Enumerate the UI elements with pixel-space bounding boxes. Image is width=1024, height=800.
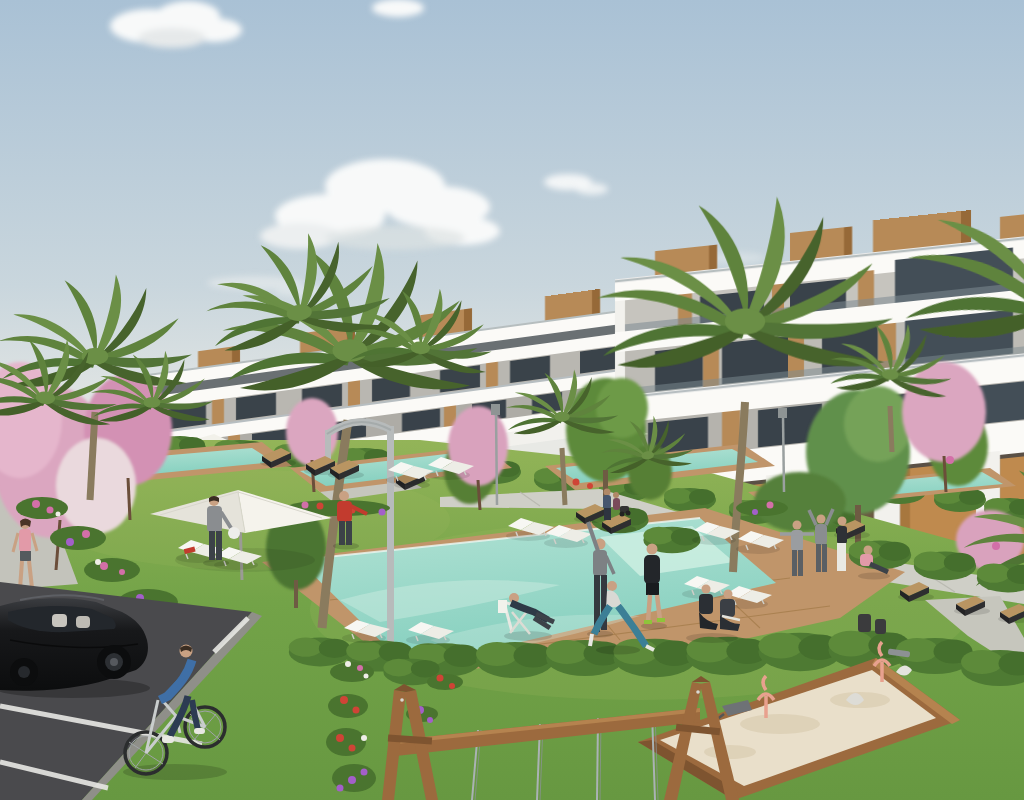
rendered-photo (0, 0, 1024, 800)
